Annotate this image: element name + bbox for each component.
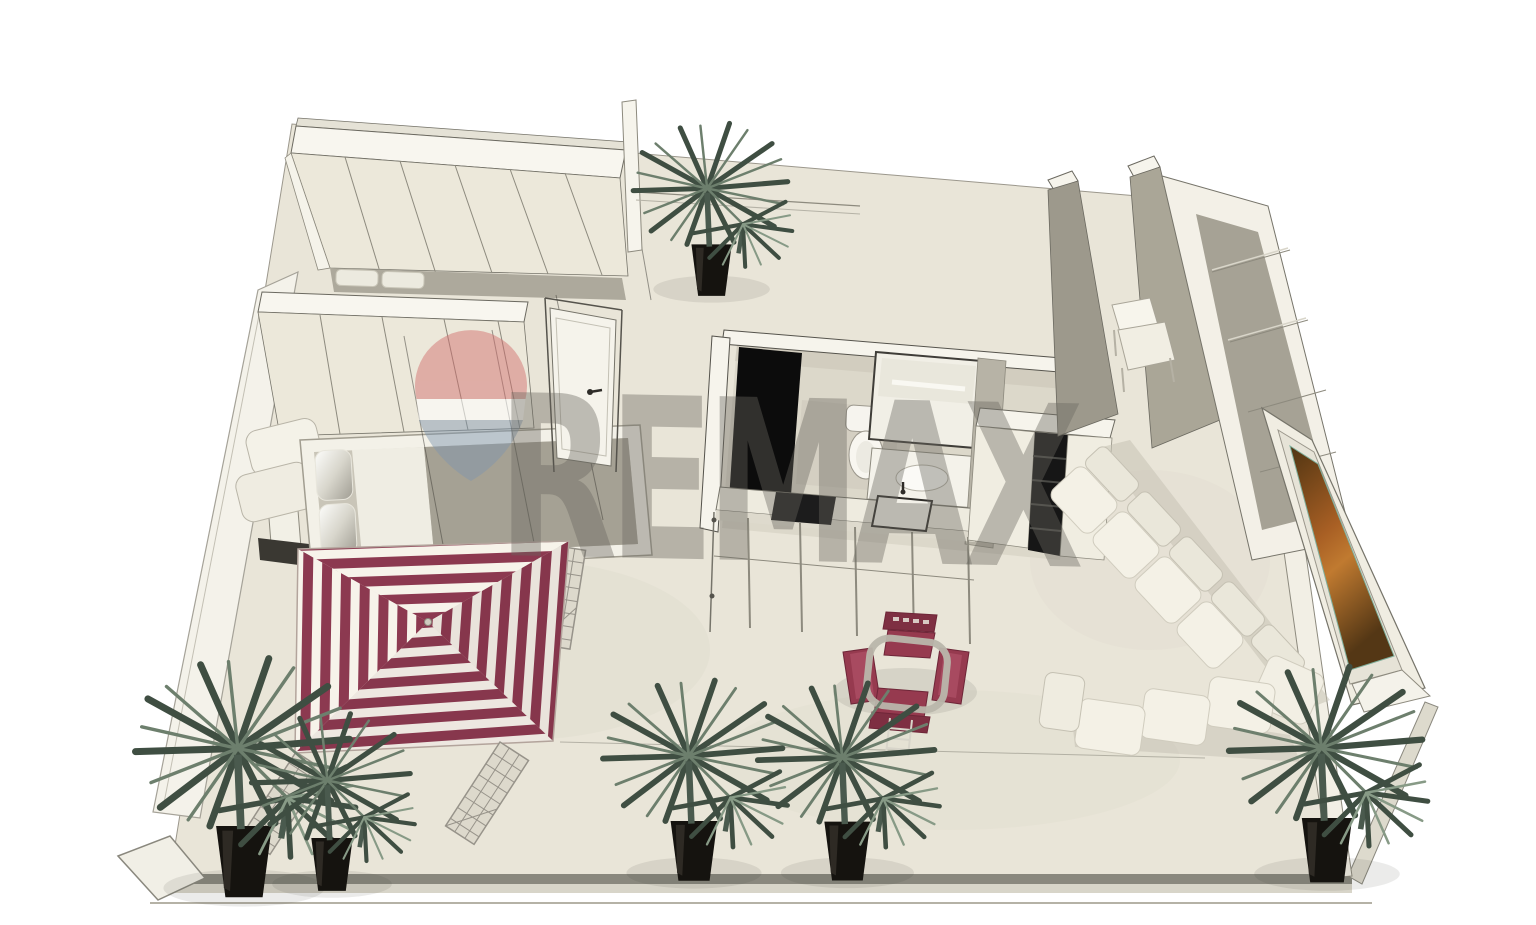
cooktop — [771, 492, 836, 525]
bed-pillow — [315, 449, 354, 501]
bathroom-mirror — [869, 352, 982, 448]
floorplan-render: REMAX — [0, 0, 1536, 925]
entrance-door — [545, 298, 622, 472]
black-shower-panel — [729, 347, 802, 508]
wardrobe-wall-upper — [285, 118, 628, 276]
floorplan-3d-scene — [0, 0, 1536, 925]
canopy-top — [295, 541, 569, 753]
canopy-center-pin — [425, 619, 432, 626]
